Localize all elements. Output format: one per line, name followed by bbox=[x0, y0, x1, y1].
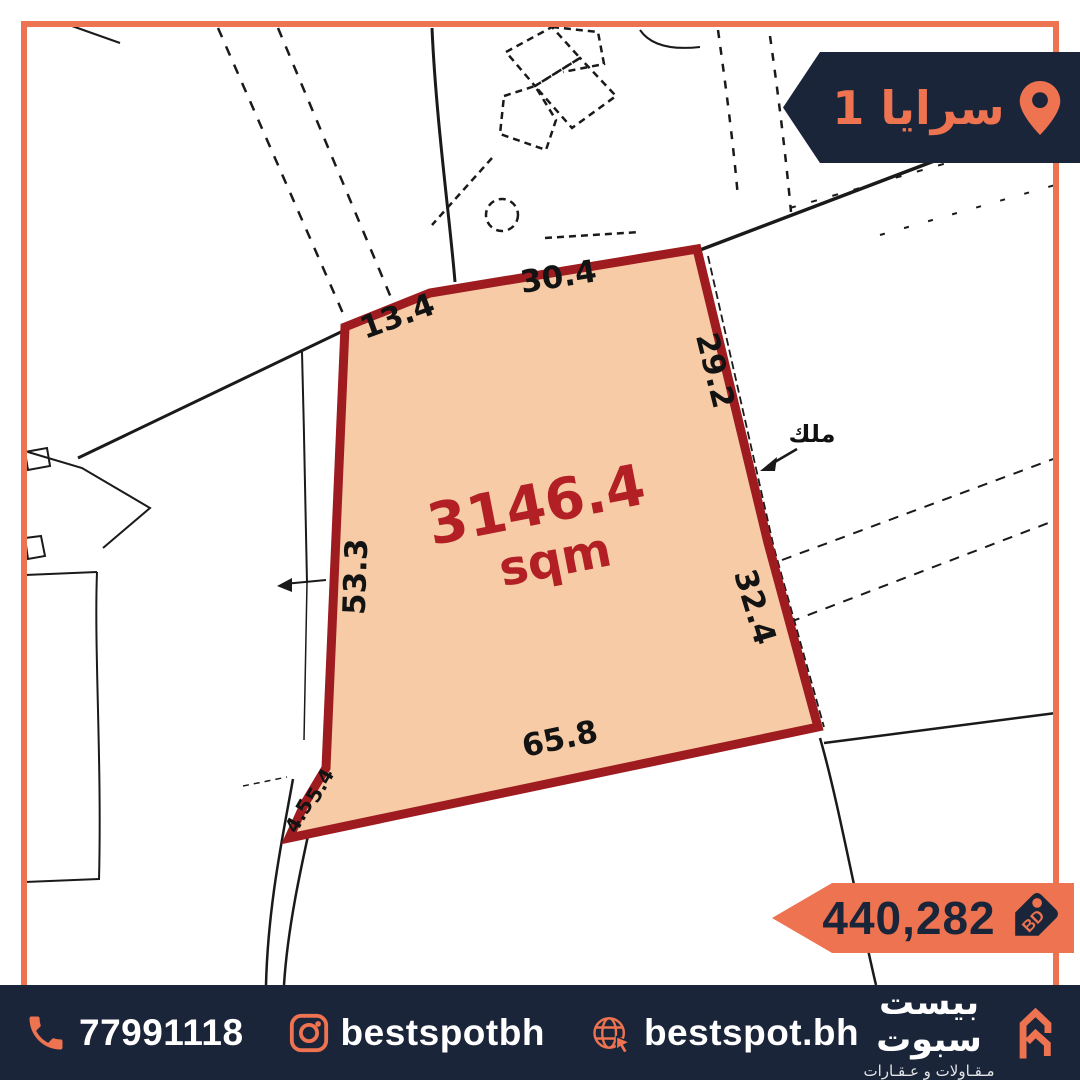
footer-bar: 77991118 bestspotbh bestspot.bh bbox=[0, 985, 1080, 1080]
double-chevron-logo-icon bbox=[1015, 990, 1056, 1076]
globe-icon bbox=[589, 1011, 633, 1055]
brand-name: بيست سبوت bbox=[859, 985, 999, 1059]
listing-poster: ملك 13.4 30.4 29.2 53.3 32.4 65.8 4.5 5.… bbox=[0, 0, 1080, 1080]
contact-info: 77991118 bestspotbh bestspot.bh bbox=[24, 1011, 859, 1055]
price-banner: 440,282 BD bbox=[772, 883, 1074, 953]
location-banner: سرايا 1 bbox=[783, 52, 1080, 163]
location-pin-icon bbox=[1019, 81, 1061, 135]
phone-icon bbox=[24, 1011, 68, 1055]
measurement-left: 53.3 bbox=[337, 538, 376, 616]
phone-contact: 77991118 bbox=[24, 1011, 244, 1055]
location-name: سرايا 1 bbox=[832, 81, 1004, 135]
phone-number: 77991118 bbox=[79, 1012, 244, 1054]
website-url: bestspot.bh bbox=[644, 1012, 859, 1054]
price-tag-icon: BD bbox=[1002, 887, 1064, 949]
instagram-handle: bestspotbh bbox=[341, 1012, 545, 1054]
owner-annotation: ملك bbox=[760, 420, 836, 471]
owner-label: ملك bbox=[788, 420, 835, 448]
instagram-contact: bestspotbh bbox=[288, 1012, 545, 1054]
instagram-icon bbox=[288, 1012, 330, 1054]
brand-block: بيست سبوت مـقـاولات و عـقـارات bbox=[859, 985, 1056, 1080]
price-amount: 440,282 bbox=[822, 891, 995, 945]
website-contact: bestspot.bh bbox=[589, 1011, 859, 1055]
brand-tagline: مـقـاولات و عـقـارات bbox=[859, 1062, 999, 1080]
